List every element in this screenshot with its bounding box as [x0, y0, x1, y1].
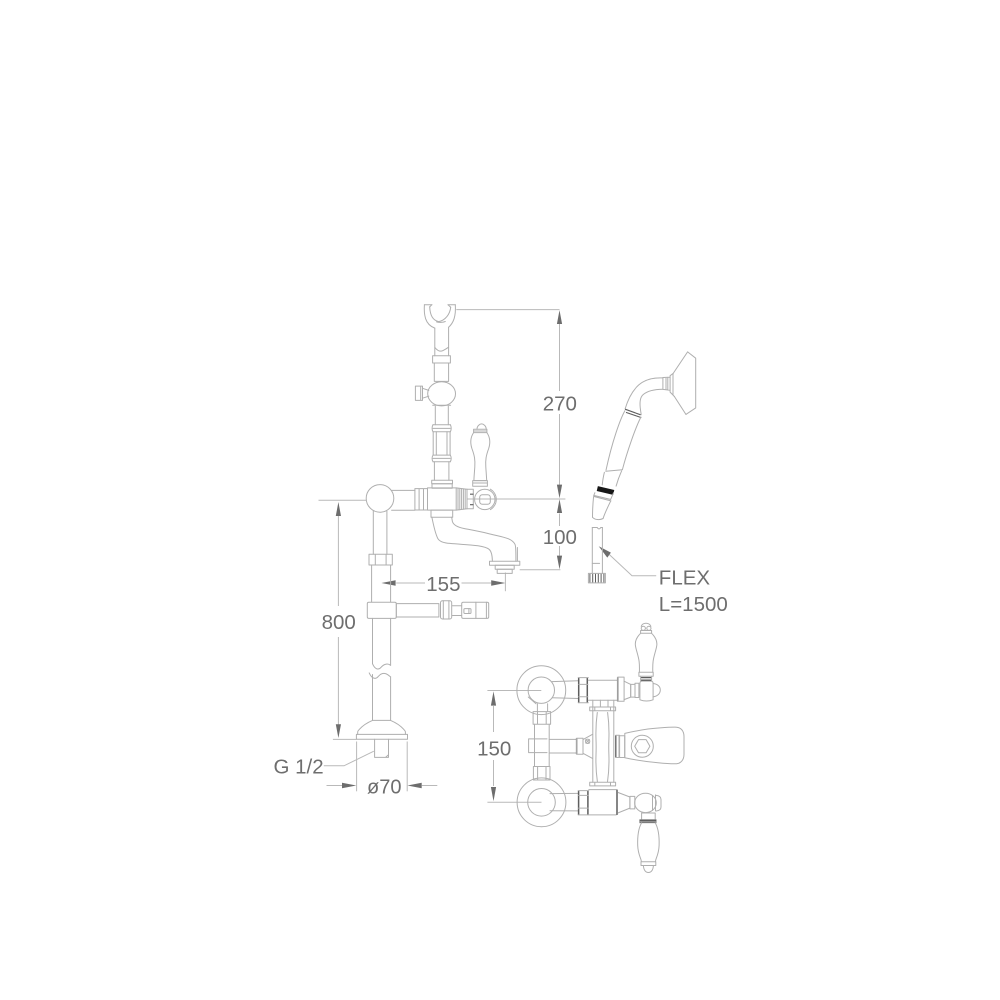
- svg-text:150: 150: [477, 737, 511, 760]
- svg-text:100: 100: [543, 526, 577, 549]
- svg-text:800: 800: [322, 611, 356, 634]
- svg-text:G 1/2: G 1/2: [274, 756, 324, 779]
- svg-text:L=1500: L=1500: [659, 593, 728, 616]
- svg-text:FLEX: FLEX: [659, 566, 711, 589]
- svg-text:270: 270: [543, 393, 577, 416]
- svg-text:ø70: ø70: [367, 775, 402, 798]
- svg-text:155: 155: [426, 573, 460, 596]
